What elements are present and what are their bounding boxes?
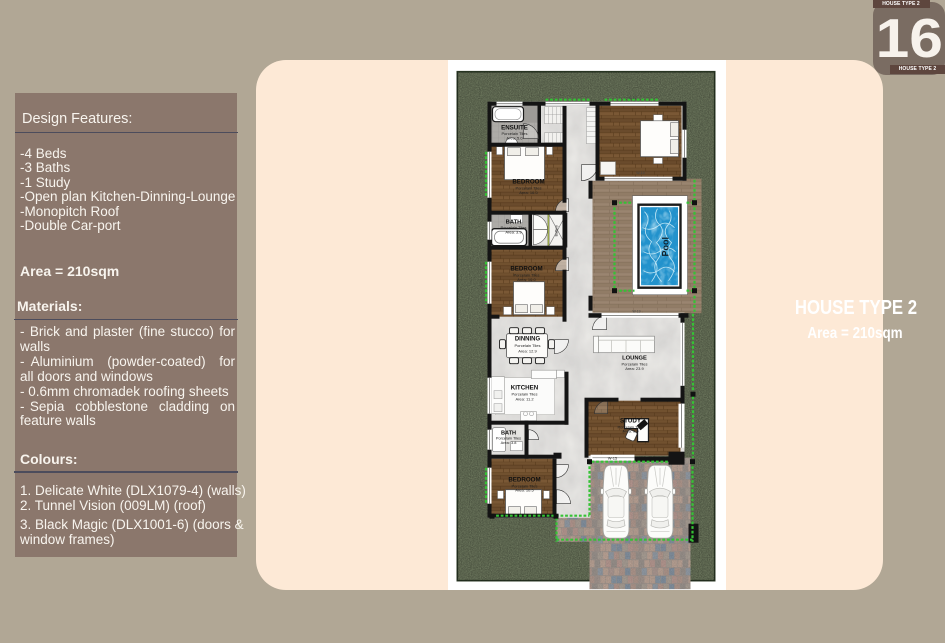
svg-text:W-05: W-05 bbox=[479, 392, 483, 400]
svg-text:Area: 10.0: Area: 10.0 bbox=[517, 277, 536, 282]
svg-text:Area: 16.0: Area: 16.0 bbox=[519, 190, 538, 195]
svg-text:Area: 10.5: Area: 10.5 bbox=[515, 488, 534, 493]
svg-text:W-15: W-15 bbox=[607, 456, 617, 461]
svg-text:DINNING: DINNING bbox=[514, 337, 540, 343]
svg-text:Area: 23.9: Area: 23.9 bbox=[625, 366, 644, 371]
svg-text:Area: 12.9: Area: 12.9 bbox=[518, 349, 537, 354]
svg-text:W-13: W-13 bbox=[479, 482, 483, 490]
svg-text:KITCHEN: KITCHEN bbox=[510, 385, 538, 392]
svg-text:W-19: W-19 bbox=[632, 310, 640, 314]
svg-text:W-12: W-12 bbox=[628, 96, 636, 100]
svg-text:Pool: Pool bbox=[660, 237, 670, 256]
svg-text:W-10: W-10 bbox=[636, 171, 644, 175]
svg-text:Area: 3.8: Area: 3.8 bbox=[500, 440, 516, 445]
svg-text:W-15: W-15 bbox=[479, 171, 483, 179]
svg-text:Battery: Battery bbox=[554, 225, 558, 237]
svg-text:Area: 3.9: Area: 3.9 bbox=[505, 230, 522, 235]
svg-text:Area: 5.0: Area: 5.0 bbox=[506, 136, 523, 141]
svg-text:Area: 11.2: Area: 11.2 bbox=[515, 397, 534, 402]
svg-text:Area: 9.0: Area: 9.0 bbox=[622, 429, 639, 434]
svg-text:W-15: W-15 bbox=[479, 279, 483, 287]
